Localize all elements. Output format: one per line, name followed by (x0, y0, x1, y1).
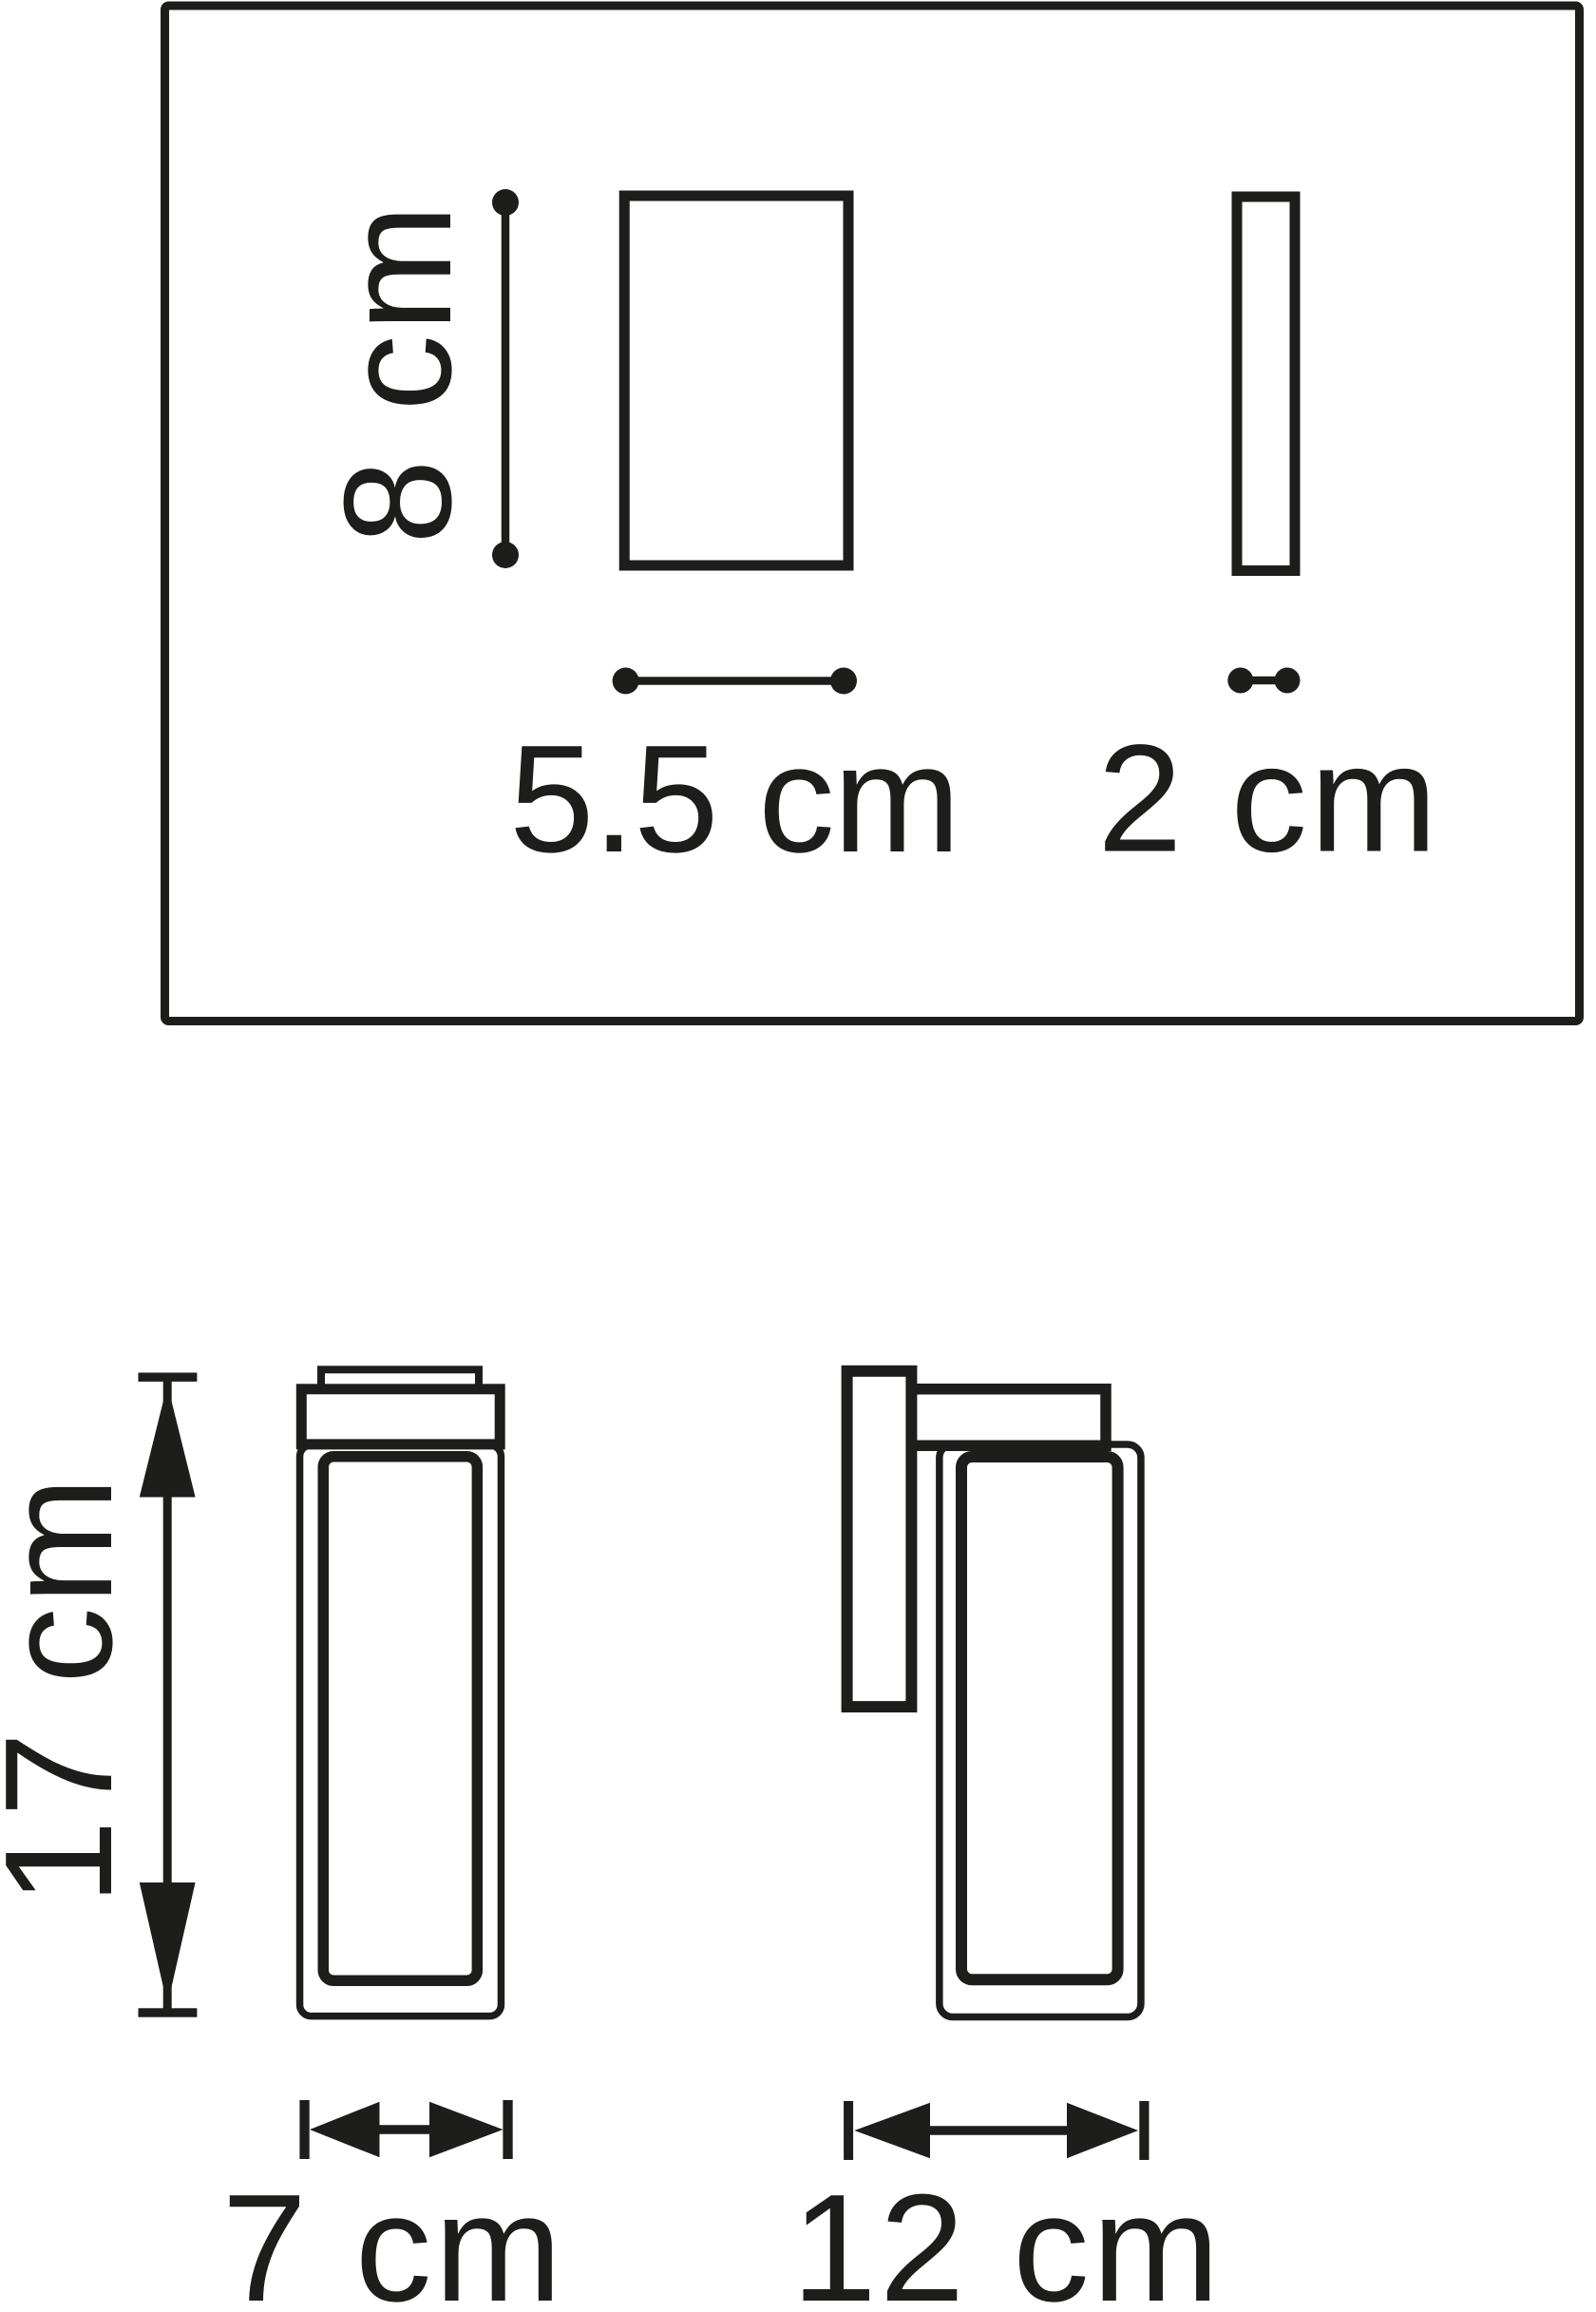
svg-text:5.5 cm: 5.5 cm (509, 714, 959, 885)
svg-text:12 cm: 12 cm (791, 2163, 1222, 2312)
svg-text:2 cm: 2 cm (1097, 714, 1440, 885)
svg-text:17 cm: 17 cm (0, 1474, 144, 1904)
svg-text:7 cm: 7 cm (222, 2163, 565, 2312)
svg-text:8 cm: 8 cm (313, 201, 484, 545)
